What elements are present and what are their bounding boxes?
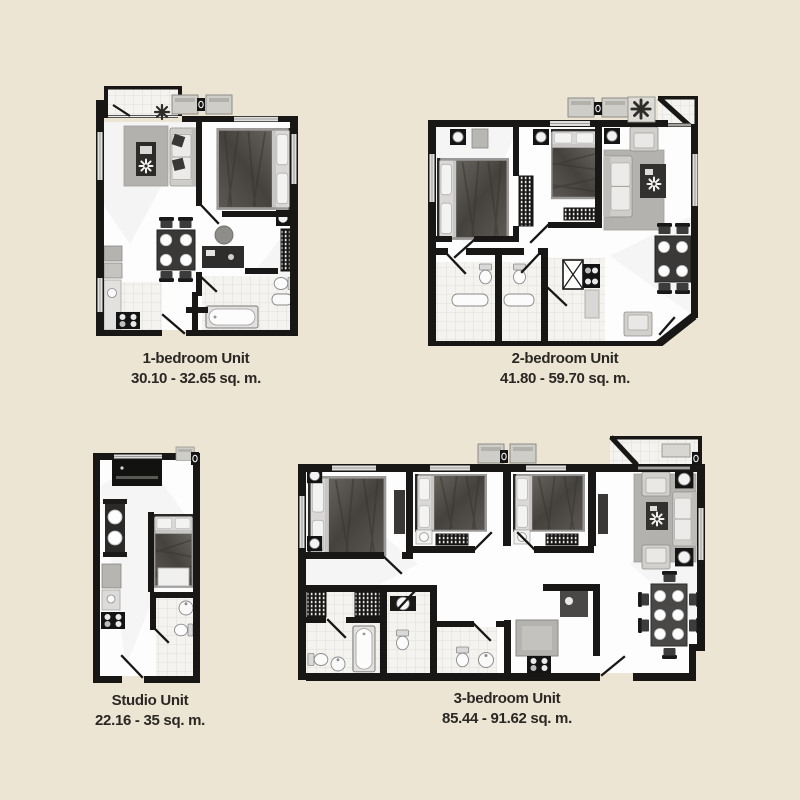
unit-plan-1bedroom [88, 86, 304, 346]
unit-label-3bedroom: 3-bedroom Unit 85.44 - 91.62 sq. m. [298, 689, 716, 728]
ottoman [472, 129, 488, 148]
floorplan-2bedroom-graphic [428, 96, 702, 346]
unit-area: 30.10 - 32.65 sq. m. [88, 369, 304, 389]
closet [355, 591, 380, 617]
bathroom-sink [331, 657, 345, 671]
unit-name: 3-bedroom Unit [298, 689, 716, 709]
armchair [642, 545, 670, 569]
bathtub [353, 626, 375, 672]
ac-unit [172, 95, 198, 114]
plant-icon [140, 160, 153, 173]
toilet [397, 630, 409, 650]
armchair [642, 472, 670, 496]
tv-console [112, 460, 162, 486]
ac-unit [510, 444, 536, 463]
bed [513, 474, 585, 532]
stove [101, 612, 125, 629]
unit-area: 22.16 - 35 sq. m. [86, 711, 214, 731]
desk [202, 246, 244, 268]
unit-name: Studio Unit [86, 691, 214, 711]
side-table-lamp [604, 128, 620, 144]
vanity [452, 294, 488, 306]
closet [307, 591, 326, 617]
unit-plan-2bedroom [428, 96, 702, 346]
ac-unit [602, 98, 628, 117]
toilet [480, 264, 492, 284]
closet [546, 534, 578, 545]
entry-marker-icon [500, 450, 508, 463]
stove [116, 312, 140, 329]
unit-plan-3bedroom [298, 424, 716, 692]
floorplan-1bedroom-graphic [88, 86, 304, 346]
unit-label-studio: Studio Unit 22.16 - 35 sq. m. [86, 691, 214, 730]
desk-chair [215, 226, 233, 244]
nightstand-lamp [307, 536, 322, 551]
armchair [630, 127, 658, 151]
entry-marker-icon [594, 102, 602, 115]
balcony [610, 436, 702, 466]
nightstand-lamp [450, 129, 466, 145]
counter [560, 591, 588, 617]
kitchen [548, 258, 605, 341]
entry-bench [624, 312, 652, 336]
bathtub [206, 306, 258, 328]
kitchen-sink [108, 289, 117, 298]
bathroom-3 [437, 627, 497, 673]
refrigerator [102, 564, 121, 588]
stove [527, 656, 551, 673]
nightstand-lamp [533, 129, 549, 145]
vanity [504, 294, 534, 306]
unit-label-2bedroom: 2-bedroom Unit 41.80 - 59.70 sq. m. [428, 349, 702, 388]
closet [519, 176, 533, 226]
unit-name: 2-bedroom Unit [428, 349, 702, 369]
plant-icon [632, 100, 650, 118]
dresser [394, 490, 405, 534]
floorplan-3bedroom-graphic [298, 424, 716, 692]
side-table-lamp [675, 548, 693, 566]
bed [216, 128, 292, 210]
sleeping-area [154, 514, 193, 588]
closet [281, 229, 290, 271]
kitchen-sink [565, 597, 573, 605]
bathroom-sink [272, 294, 292, 305]
balcony [104, 86, 182, 118]
entry-marker-icon [197, 98, 205, 111]
stove [583, 264, 600, 288]
kitchen-sink [107, 595, 115, 603]
toilet [457, 647, 469, 667]
bathroom [202, 276, 294, 330]
bed-bench [158, 568, 189, 586]
unit-area: 85.44 - 91.62 sq. m. [298, 709, 716, 729]
toilet [308, 654, 328, 666]
floorplan-sheet: 1-bedroom Unit 30.10 - 32.65 sq. m. 2-be… [0, 0, 800, 800]
planter [628, 97, 655, 122]
bed [551, 129, 597, 199]
sofa [604, 156, 632, 217]
closet [564, 208, 596, 220]
plant-icon [155, 105, 169, 119]
ac-unit [662, 444, 690, 457]
closet [436, 534, 468, 545]
ac-unit [206, 95, 232, 114]
side-table-lamp [675, 470, 693, 488]
dining-area [103, 499, 127, 557]
floorplan-studio-graphic [86, 446, 214, 690]
plant-icon [648, 178, 661, 191]
sofa [673, 492, 697, 546]
toilet [175, 624, 194, 636]
ac-unit [568, 98, 594, 117]
bathroom-sink [479, 653, 494, 668]
counter [585, 290, 599, 318]
sofa [170, 128, 198, 186]
toilet [514, 264, 526, 284]
bedroom-3 [513, 474, 585, 545]
bathroom-sink [179, 601, 193, 615]
entry-marker-icon [191, 452, 199, 465]
bathrooms [436, 262, 541, 341]
bed [415, 474, 487, 532]
unit-label-1bedroom: 1-bedroom Unit 30.10 - 32.65 sq. m. [88, 349, 304, 388]
console [598, 494, 608, 534]
plant-icon [651, 513, 664, 526]
unit-plan-studio [86, 446, 214, 690]
entry-marker-icon [692, 452, 700, 465]
bed [437, 158, 509, 240]
windows [114, 455, 162, 459]
bedroom [216, 128, 292, 210]
bathroom-2 [387, 592, 430, 673]
unit-area: 41.80 - 59.70 sq. m. [428, 369, 702, 389]
unit-name: 1-bedroom Unit [88, 349, 304, 369]
living-room [604, 127, 666, 230]
refrigerator [104, 246, 122, 261]
